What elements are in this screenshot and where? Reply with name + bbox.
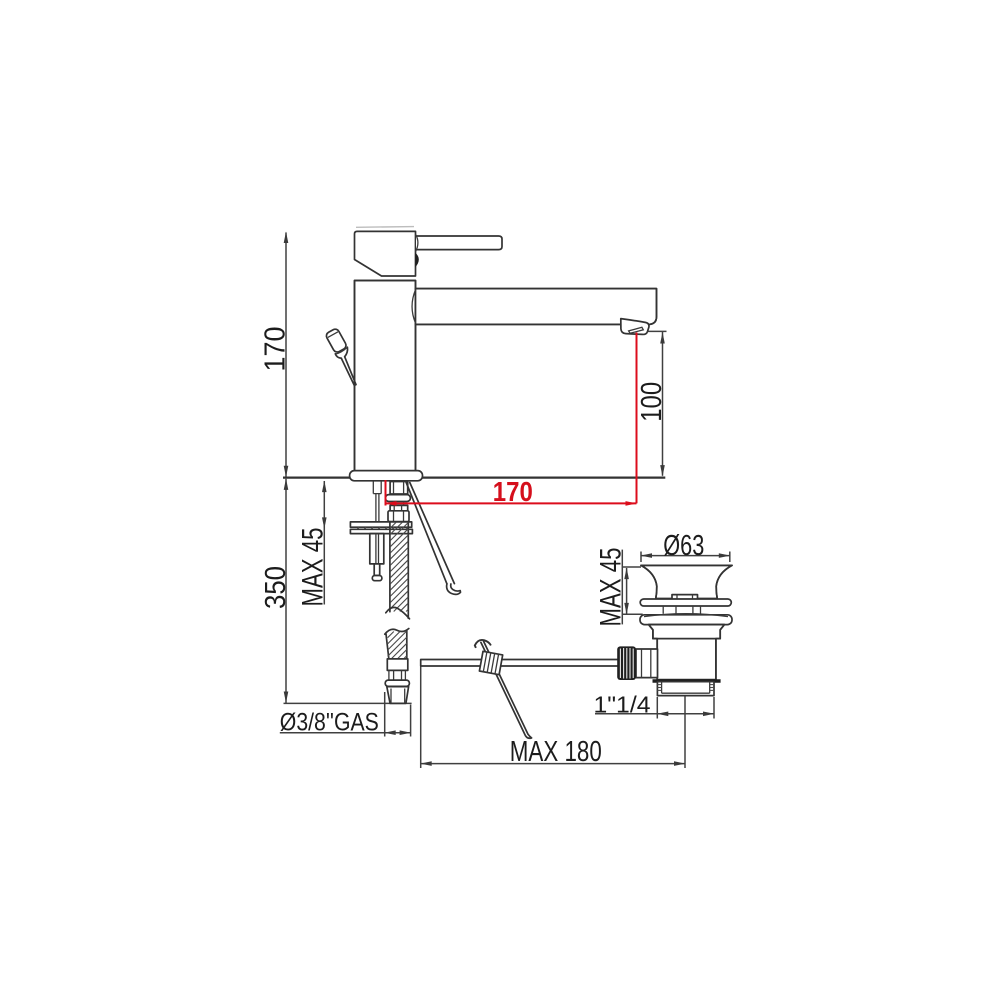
svg-text:Ø3/8''GAS: Ø3/8''GAS <box>280 709 379 737</box>
svg-text:170: 170 <box>493 476 533 507</box>
svg-text:100: 100 <box>636 382 668 422</box>
svg-text:170: 170 <box>260 327 292 372</box>
svg-text:350: 350 <box>260 566 292 609</box>
svg-text:Ø63: Ø63 <box>663 530 704 562</box>
svg-text:1"1/4: 1"1/4 <box>594 692 651 718</box>
svg-text:MAX 45: MAX 45 <box>297 528 330 607</box>
svg-text:MAX 180: MAX 180 <box>510 736 602 768</box>
svg-text:MAX 45: MAX 45 <box>595 548 628 627</box>
